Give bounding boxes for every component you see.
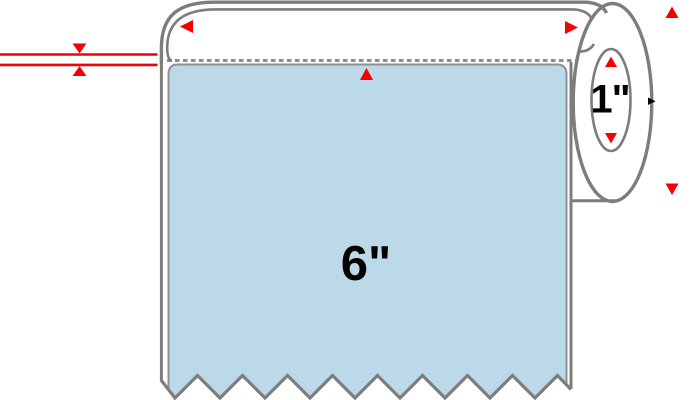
outer-diameter-arrow-up-icon xyxy=(666,7,679,19)
roll-outer-outline xyxy=(161,2,606,64)
core-diameter-text: 1" xyxy=(590,78,629,122)
roll-width-arrow-right-icon xyxy=(565,21,578,34)
roll-inner-outline xyxy=(167,9,592,60)
outer-diameter-arrow-down-icon xyxy=(666,184,679,196)
label-front xyxy=(169,65,567,399)
thickness-arrow-up-icon xyxy=(73,66,87,76)
label-roll-diagram: 1" 6" xyxy=(0,0,693,400)
roll-width-arrow-left-icon xyxy=(180,20,193,33)
thickness-arrow-down-icon xyxy=(73,44,87,54)
label-length-text: 6" xyxy=(341,237,391,291)
